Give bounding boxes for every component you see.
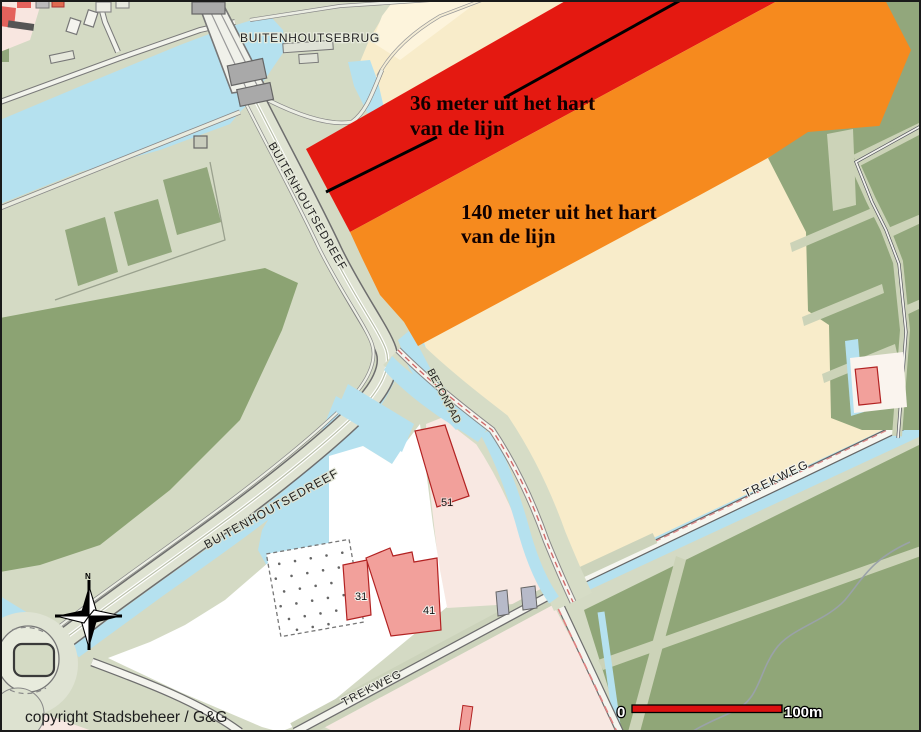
svg-text:van de lijn: van de lijn bbox=[410, 116, 505, 140]
svg-text:100m: 100m bbox=[784, 704, 822, 721]
svg-text:BUITENHOUTSEBRUG: BUITENHOUTSEBRUG bbox=[240, 31, 380, 45]
svg-text:51: 51 bbox=[441, 497, 453, 509]
svg-text:31: 31 bbox=[355, 591, 367, 603]
svg-text:copyright Stadsbeheer / G&G: copyright Stadsbeheer / G&G bbox=[25, 709, 227, 726]
svg-text:36 meter uit het hart: 36 meter uit het hart bbox=[410, 91, 595, 115]
svg-text:140 meter uit het hart: 140 meter uit het hart bbox=[461, 200, 657, 224]
svg-text:0: 0 bbox=[617, 704, 625, 721]
svg-text:van de lijn: van de lijn bbox=[461, 224, 556, 248]
svg-text:41: 41 bbox=[423, 605, 435, 617]
svg-text:N: N bbox=[85, 572, 91, 581]
